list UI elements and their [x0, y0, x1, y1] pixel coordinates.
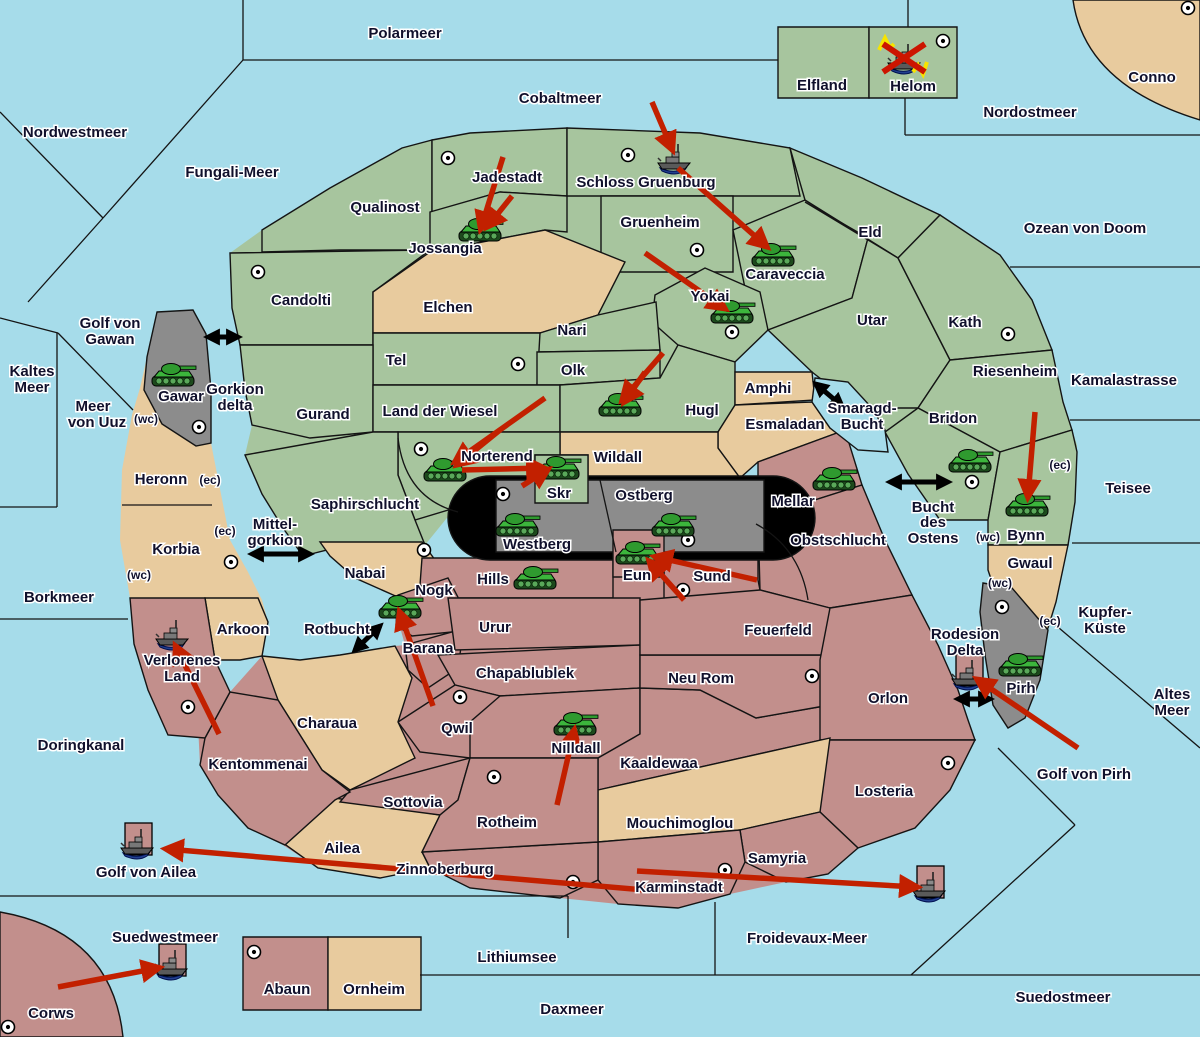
label-candolti: Candolti: [271, 292, 331, 309]
label-wc: (wc): [976, 530, 1000, 544]
city-marker[interactable]: [182, 701, 195, 714]
label-amphi: Amphi: [745, 380, 792, 397]
region-urur[interactable]: [448, 598, 640, 650]
label-kaaldewaa: Kaaldewaa: [620, 755, 698, 772]
label-gawan: Gawan: [85, 331, 134, 348]
label-eld: Eld: [858, 224, 881, 241]
label-hills: Hills: [477, 571, 509, 588]
label-land: Land: [164, 668, 200, 685]
label-wc: (wc): [134, 412, 158, 426]
label-riesenheim: Riesenheim: [973, 363, 1057, 380]
label-ostberg: Ostberg: [615, 487, 673, 504]
label-ornheim: Ornheim: [343, 981, 405, 998]
label-golf-von: Golf von: [80, 315, 141, 332]
label-ec: (ec): [1039, 614, 1060, 628]
label-korbia: Korbia: [152, 541, 200, 558]
label-kamalastrasse: Kamalastrasse: [1071, 372, 1177, 389]
label-eun: Eun: [623, 567, 651, 584]
region-ornheim[interactable]: [328, 937, 421, 1010]
label-ec: (ec): [1049, 458, 1070, 472]
label-utar: Utar: [857, 312, 887, 329]
label-altes: Altes: [1154, 686, 1191, 703]
label-lithiumsee: Lithiumsee: [477, 949, 556, 966]
label-sund: Sund: [693, 568, 731, 585]
label-feuerfeld: Feuerfeld: [744, 622, 812, 639]
label-neu-rom: Neu Rom: [668, 670, 734, 687]
label-meer: Meer: [1154, 702, 1189, 719]
label-nari: Nari: [557, 322, 586, 339]
label-tel: Tel: [386, 352, 407, 369]
label-hugl: Hugl: [685, 402, 718, 419]
label-land-der-wiesel: Land der Wiesel: [383, 403, 498, 420]
city-marker[interactable]: [248, 946, 261, 959]
label-barana: Barana: [403, 640, 455, 657]
city-marker[interactable]: [996, 601, 1009, 614]
label-jadestadt: Jadestadt: [472, 169, 542, 186]
label-nordwestmeer: Nordwestmeer: [23, 124, 127, 141]
label-chapablublek: Chapablublek: [476, 665, 575, 682]
label-abaun: Abaun: [264, 981, 311, 998]
label-mouchimoglou: Mouchimoglou: [627, 815, 734, 832]
label-gorkion: gorkion: [248, 532, 303, 549]
label-ozean-von-doom: Ozean von Doom: [1024, 220, 1147, 237]
label-suedwestmeer: Suedwestmeer: [112, 929, 218, 946]
label-golf-von-ailea: Golf von Ailea: [96, 864, 197, 881]
ship-unit[interactable]: [913, 866, 945, 902]
label-bridon: Bridon: [929, 410, 977, 427]
ship-unit[interactable]: [121, 823, 153, 859]
label-gruenheim: Gruenheim: [620, 214, 699, 231]
label-conno: Conno: [1128, 69, 1175, 86]
label-caraveccia: Caraveccia: [745, 266, 825, 283]
game-map: PolarmeerNordwestmeerFungali-MeerCobaltm…: [0, 0, 1200, 1037]
label-suedostmeer: Suedostmeer: [1015, 989, 1110, 1006]
label-nordostmeer: Nordostmeer: [983, 104, 1077, 121]
label-gwaul: Gwaul: [1007, 555, 1052, 572]
label-orlon: Orlon: [868, 690, 908, 707]
city-marker[interactable]: [225, 556, 238, 569]
label-ailea: Ailea: [324, 840, 361, 857]
city-marker[interactable]: [1182, 2, 1195, 15]
label-corws: Corws: [28, 1005, 74, 1022]
city-marker[interactable]: [454, 691, 467, 704]
label-ostens: Ostens: [908, 530, 959, 547]
label-charaua: Charaua: [297, 715, 358, 732]
label-esmaladan: Esmaladan: [745, 416, 824, 433]
label-kaltes: Kaltes: [9, 363, 54, 380]
label-doringkanal: Doringkanal: [38, 737, 125, 754]
city-marker[interactable]: [942, 757, 955, 770]
city-marker[interactable]: [252, 266, 265, 279]
label-von-uuz: von Uuz: [68, 414, 126, 431]
label-mellar: Mellar: [771, 493, 815, 510]
label-delta: delta: [217, 397, 253, 414]
label-jossangia: Jossangia: [408, 240, 482, 257]
label-froidevaux-meer: Froidevaux-Meer: [747, 930, 867, 947]
city-marker[interactable]: [966, 476, 979, 489]
label-rotbucht: Rotbucht: [304, 621, 370, 638]
label-kath: Kath: [948, 314, 981, 331]
label-gawar: Gawar: [158, 388, 204, 405]
label-nogk: Nogk: [415, 582, 453, 599]
label-urur: Urur: [479, 619, 511, 636]
label-obstschlucht: Obstschlucht: [790, 532, 886, 549]
label-karminstadt: Karminstadt: [635, 879, 723, 896]
label-yokai: Yokai: [691, 288, 730, 305]
label-elfland: Elfland: [797, 77, 847, 94]
label-ec: (ec): [214, 524, 235, 538]
city-marker[interactable]: [1002, 328, 1015, 341]
label-des: des: [920, 514, 946, 531]
label-kentommenai: Kentommenai: [208, 756, 307, 773]
label-gorkion: Gorkion: [206, 381, 264, 398]
label-saphirschlucht: Saphirschlucht: [311, 496, 419, 513]
label-k-ste: Küste: [1084, 620, 1126, 637]
city-marker[interactable]: [442, 152, 455, 165]
label-borkmeer: Borkmeer: [24, 589, 94, 606]
label-wc: (wc): [988, 576, 1012, 590]
label-wc: (wc): [127, 568, 151, 582]
label-olk: Olk: [561, 362, 586, 379]
label-polarmeer: Polarmeer: [368, 25, 442, 42]
label-meer: Meer: [75, 398, 110, 415]
label-wildall: Wildall: [594, 449, 642, 466]
label-elchen: Elchen: [423, 299, 472, 316]
movement-arrow-icon: [462, 468, 543, 470]
city-marker[interactable]: [415, 443, 428, 456]
label-golf-von-pirh: Golf von Pirh: [1037, 766, 1131, 783]
ship-unit[interactable]: [155, 944, 187, 980]
city-marker[interactable]: [806, 670, 819, 683]
label-sottovia: Sottovia: [383, 794, 443, 811]
label-teisee: Teisee: [1105, 480, 1151, 497]
label-kupfer: Kupfer-: [1078, 604, 1131, 621]
label-cobaltmeer: Cobaltmeer: [519, 90, 602, 107]
label-zinnoberburg: Zinnoberburg: [396, 861, 494, 878]
label-arkoon: Arkoon: [217, 621, 270, 638]
label-verlorenes: Verlorenes: [144, 652, 221, 669]
label-gurand: Gurand: [296, 406, 349, 423]
label-fungali-meer: Fungali-Meer: [185, 164, 279, 181]
city-marker[interactable]: [497, 488, 510, 501]
label-rodesion: Rodesion: [931, 626, 999, 643]
city-marker[interactable]: [691, 244, 704, 257]
label-nabai: Nabai: [345, 565, 386, 582]
label-helom: Helom: [890, 78, 936, 95]
city-marker[interactable]: [726, 326, 739, 339]
label-heronn: Heronn: [135, 471, 188, 488]
label-qwil: Qwil: [441, 720, 473, 737]
city-marker[interactable]: [512, 358, 525, 371]
label-meer: Meer: [14, 379, 49, 396]
city-marker[interactable]: [937, 35, 950, 48]
city-marker[interactable]: [488, 771, 501, 784]
war-map-stage: PolarmeerNordwestmeerFungali-MeerCobaltm…: [0, 0, 1200, 1037]
city-marker[interactable]: [622, 149, 635, 162]
city-marker[interactable]: [2, 1021, 15, 1034]
label-ec: (ec): [199, 473, 220, 487]
label-skr: Skr: [547, 485, 571, 502]
label-pirh: Pirh: [1006, 680, 1035, 697]
city-marker[interactable]: [418, 544, 431, 557]
label-smaragd: Smaragd-: [827, 400, 896, 417]
label-delta: Delta: [947, 642, 984, 659]
label-schloss-gruenburg: Schloss Gruenburg: [576, 174, 715, 191]
label-westberg: Westberg: [503, 536, 571, 553]
label-norterend: Norterend: [461, 448, 533, 465]
label-bynn: Bynn: [1007, 527, 1045, 544]
label-qualinost: Qualinost: [350, 199, 419, 216]
label-nilldall: Nilldall: [551, 740, 600, 757]
ship-unit[interactable]: [952, 654, 984, 690]
city-marker[interactable]: [193, 421, 206, 434]
label-samyria: Samyria: [748, 850, 807, 867]
label-losteria: Losteria: [855, 783, 914, 800]
label-daxmeer: Daxmeer: [540, 1001, 604, 1018]
label-mittel: Mittel-: [253, 516, 297, 533]
label-bucht: Bucht: [841, 416, 884, 433]
label-rotheim: Rotheim: [477, 814, 537, 831]
